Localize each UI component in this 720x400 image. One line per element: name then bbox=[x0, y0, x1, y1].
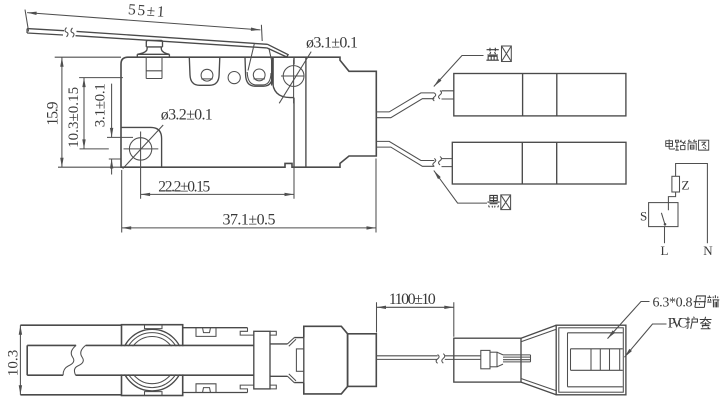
svg-text:ø3.1±0.1: ø3.1±0.1 bbox=[306, 35, 358, 52]
svg-text:10.3: 10.3 bbox=[6, 350, 22, 377]
svg-text:1100±10: 1100±10 bbox=[389, 291, 436, 308]
svg-text:S: S bbox=[640, 208, 647, 223]
svg-text:3.1±0.1: 3.1±0.1 bbox=[93, 83, 109, 127]
svg-text:L: L bbox=[661, 243, 669, 258]
svg-text:15.9: 15.9 bbox=[45, 101, 62, 125]
svg-text:Z: Z bbox=[682, 177, 690, 192]
svg-text:55±1: 55±1 bbox=[128, 1, 166, 21]
svg-text:6.3*0.8: 6.3*0.8 bbox=[653, 296, 693, 311]
svg-text:N: N bbox=[703, 243, 713, 258]
svg-text:PVC: PVC bbox=[668, 315, 688, 331]
svg-text:ø3.2±0.1: ø3.2±0.1 bbox=[161, 107, 213, 124]
svg-text:10.3±0.15: 10.3±0.15 bbox=[66, 87, 82, 148]
svg-text:37.1±0.5: 37.1±0.5 bbox=[223, 212, 276, 229]
svg-text:22.2±0.15: 22.2±0.15 bbox=[158, 179, 210, 196]
